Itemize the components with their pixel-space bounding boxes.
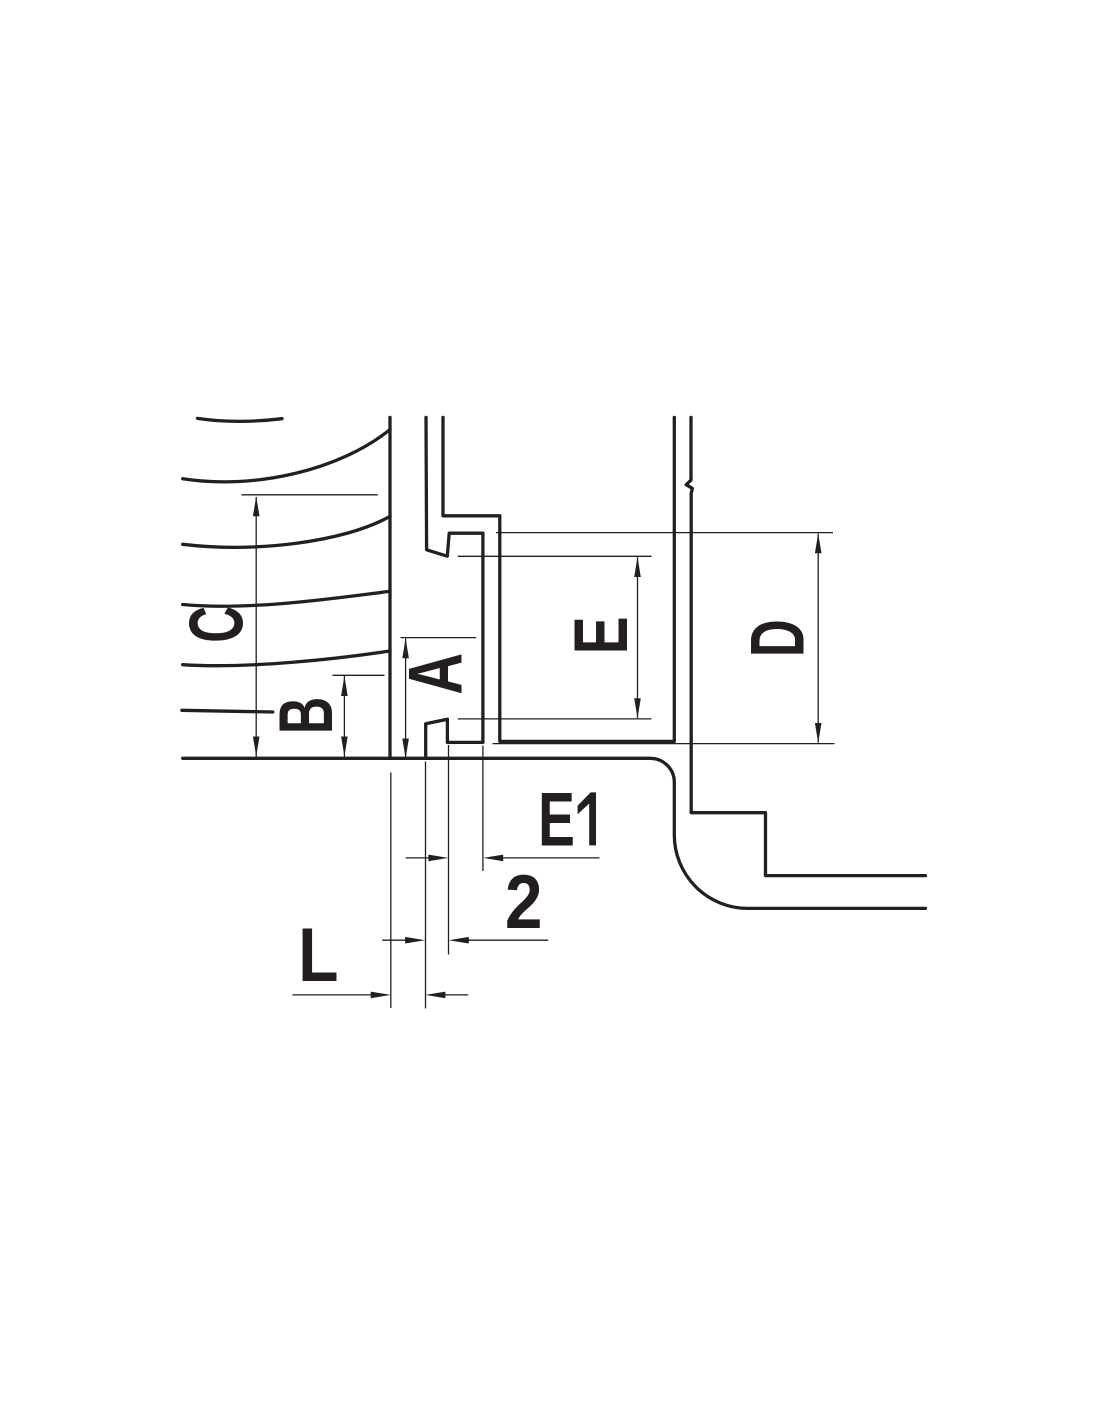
- svg-text:C: C: [173, 606, 259, 643]
- svg-text:2: 2: [505, 860, 543, 945]
- svg-text:A: A: [394, 653, 478, 695]
- svg-text:L: L: [298, 914, 338, 998]
- svg-text:B: B: [263, 697, 348, 734]
- svg-text:D: D: [735, 619, 820, 657]
- svg-text:E: E: [538, 778, 575, 863]
- svg-text:E: E: [559, 616, 644, 654]
